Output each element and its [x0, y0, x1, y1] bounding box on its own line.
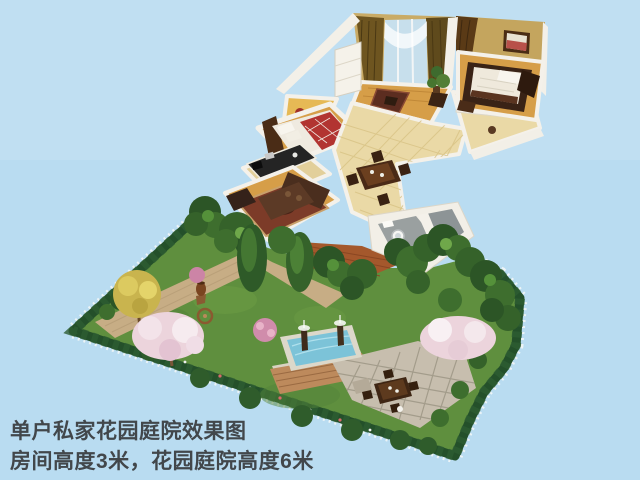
- wardrobe-cabinet: [335, 42, 361, 97]
- cherry-blossom-tree: [420, 316, 496, 360]
- dinner-plate: [370, 170, 374, 174]
- tree: [268, 226, 296, 254]
- image-title: 单户私家花园庭院效果图: [10, 417, 314, 447]
- tree: [99, 304, 115, 320]
- garden-statue: [397, 406, 403, 412]
- garden-ring-center: [203, 314, 207, 318]
- pink-shrub: [253, 318, 277, 342]
- conifer-highlight: [241, 228, 257, 272]
- pink-shrub: [189, 267, 205, 283]
- caption: 单户私家花园庭院效果图 房间高度3米，花园庭院高度6米: [10, 417, 314, 477]
- stool: [488, 126, 496, 134]
- table-plate: [395, 389, 399, 393]
- sofa-cushion: [285, 191, 291, 197]
- fountain-statue: [301, 329, 308, 351]
- table-plate: [388, 386, 392, 390]
- image-subtitle: 房间高度3米，花园庭院高度6米: [10, 447, 314, 477]
- kitchen-sink: [293, 153, 298, 158]
- floorplan-render: 单户私家花园庭院效果图 房间高度3米，花园庭院高度6米: [0, 0, 640, 480]
- sofa-cushion: [296, 195, 302, 201]
- master-bedroom: [456, 16, 548, 120]
- fountain-statue: [337, 324, 344, 346]
- garden-urn-ornament: [196, 281, 206, 305]
- render-scene: [0, 0, 640, 480]
- dinner-plate: [380, 173, 384, 177]
